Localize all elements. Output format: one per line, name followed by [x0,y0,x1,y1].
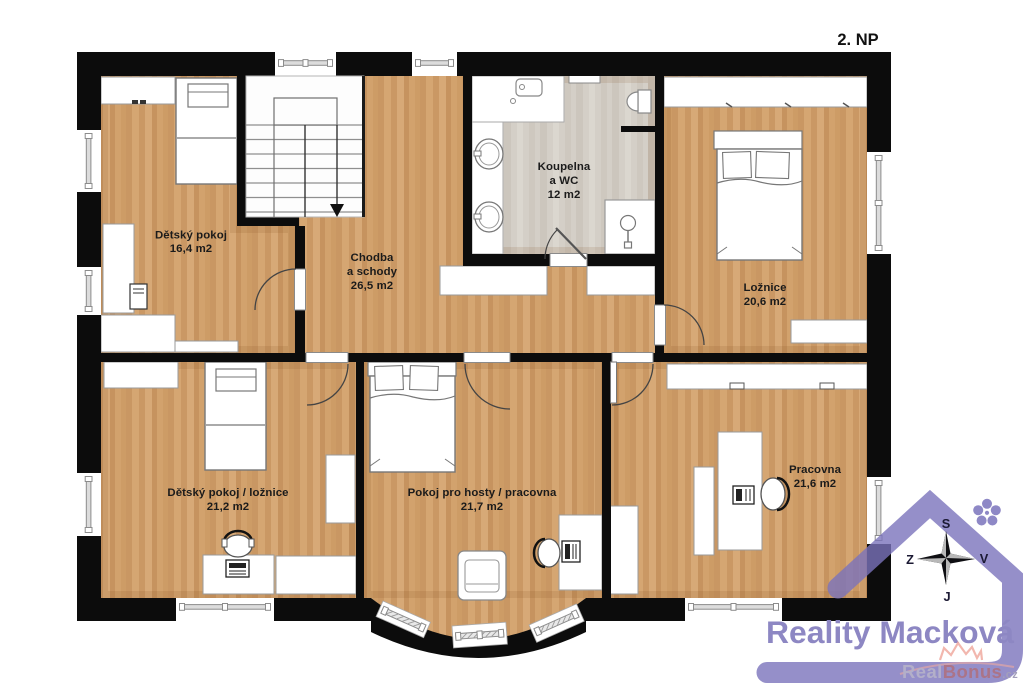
svg-text:21,2 m2: 21,2 m2 [207,501,250,513]
svg-text:12 m2: 12 m2 [548,189,581,201]
svg-text:Pracovna: Pracovna [789,464,842,476]
svg-text:Reality Macková: Reality Macková [766,614,1014,650]
svg-text:S: S [942,516,951,531]
svg-text:20,6 m2: 20,6 m2 [744,296,787,308]
svg-text:Koupelna: Koupelna [538,161,591,173]
svg-text:21,7 m2: 21,7 m2 [461,501,504,513]
svg-text:Pokoj pro hosty / pracovna: Pokoj pro hosty / pracovna [408,487,557,499]
svg-text:26,5 m2: 26,5 m2 [351,280,394,292]
svg-text:a WC: a WC [550,175,579,187]
svg-text:RealBonus.cz: RealBonus.cz [902,661,1018,682]
svg-text:2. NP: 2. NP [837,31,878,49]
svg-text:V: V [980,551,989,566]
svg-text:Dětský pokoj / ložnice: Dětský pokoj / ložnice [167,487,288,499]
svg-text:a schody: a schody [347,266,398,278]
svg-text:Chodba: Chodba [351,252,395,264]
svg-text:Ložnice: Ložnice [743,282,786,294]
svg-text:16,4 m2: 16,4 m2 [170,243,213,255]
svg-text:J: J [943,589,950,604]
svg-text:21,6 m2: 21,6 m2 [794,478,837,490]
svg-text:Z: Z [906,552,914,567]
svg-text:Dětský pokoj: Dětský pokoj [155,230,227,242]
